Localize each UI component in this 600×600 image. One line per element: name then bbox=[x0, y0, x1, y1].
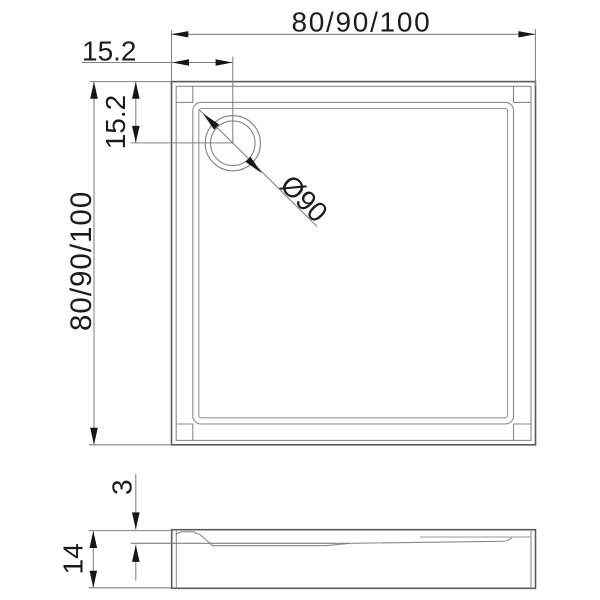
svg-text:14: 14 bbox=[58, 543, 89, 574]
svg-text:80/90/100: 80/90/100 bbox=[65, 191, 98, 331]
svg-text:80/90/100: 80/90/100 bbox=[292, 7, 432, 38]
svg-text:3: 3 bbox=[106, 479, 137, 495]
svg-text:15.2: 15.2 bbox=[100, 95, 131, 150]
svg-text:15.2: 15.2 bbox=[82, 35, 137, 66]
